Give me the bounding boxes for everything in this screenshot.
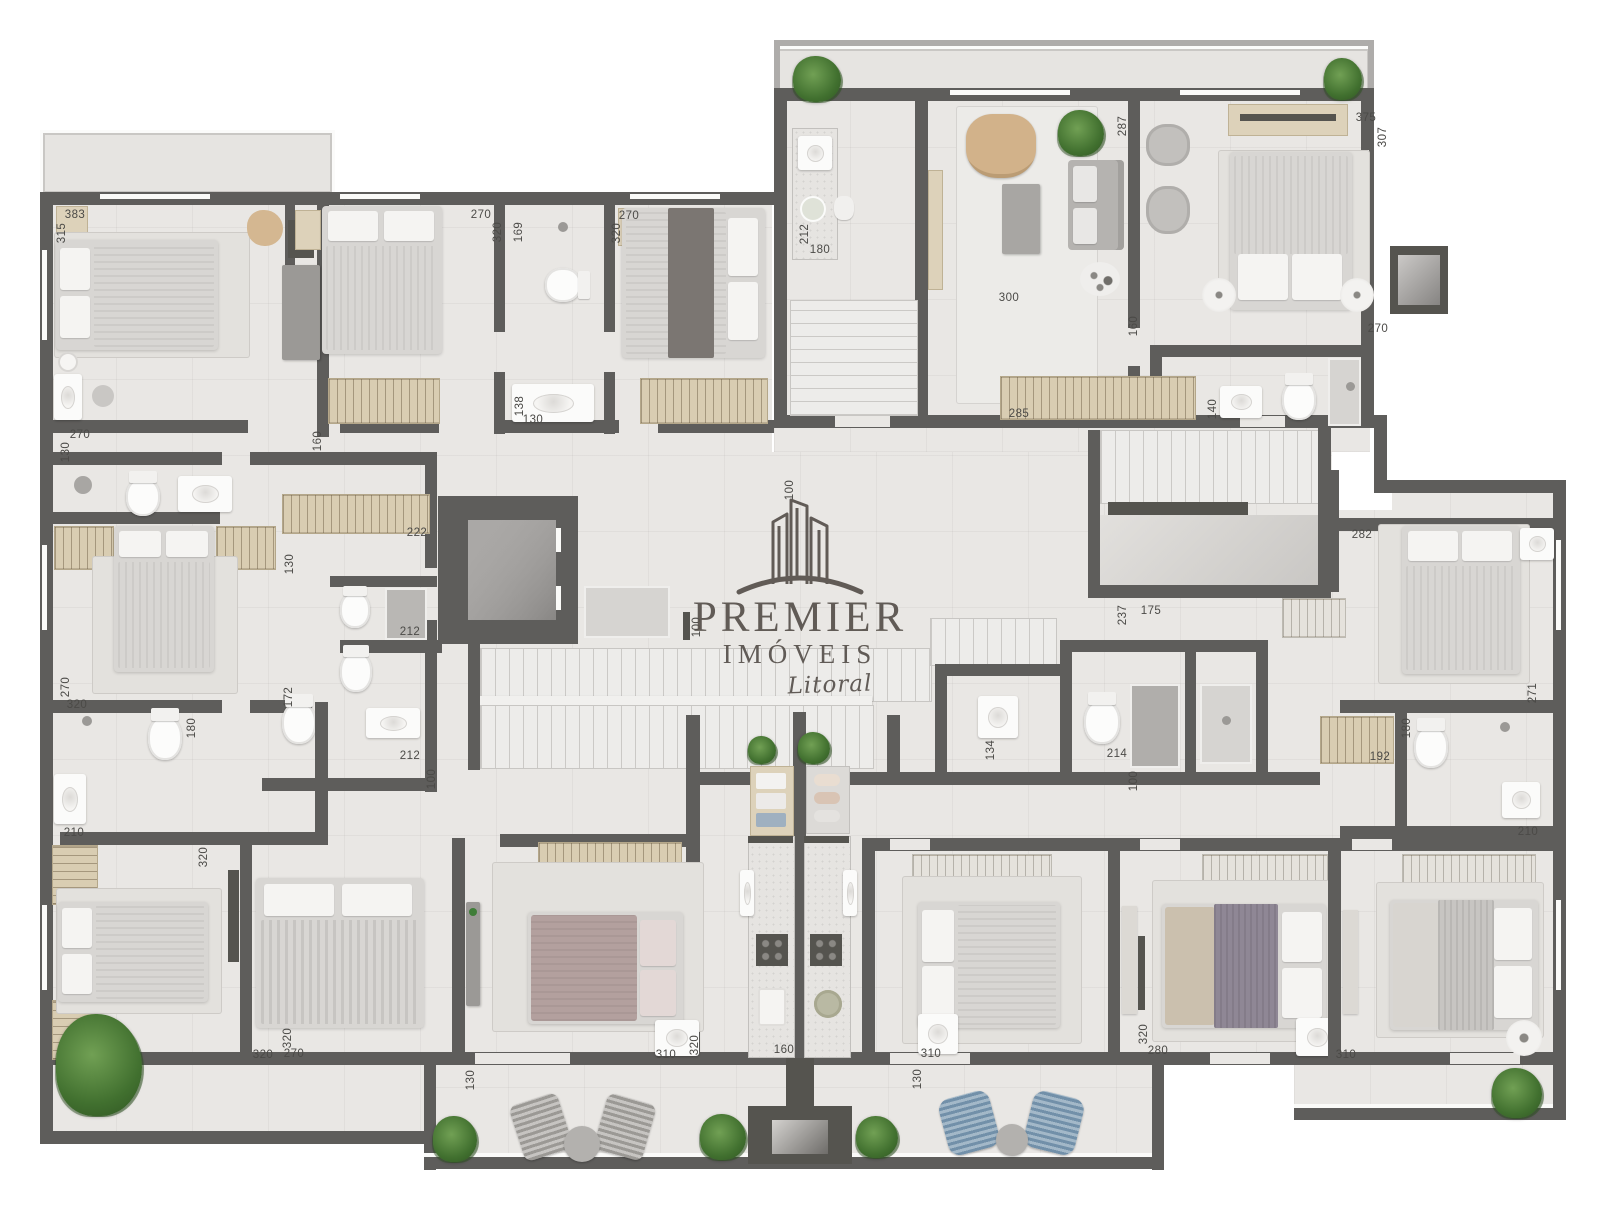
floor-lamp — [1506, 1020, 1542, 1056]
floor-lamp — [74, 476, 92, 494]
staircase — [930, 618, 1057, 666]
nightstand — [295, 210, 321, 250]
wall — [262, 778, 432, 791]
dimension-label: 130 — [912, 1069, 924, 1089]
window — [1180, 90, 1300, 95]
wardrobe — [328, 378, 440, 424]
washing-machine — [798, 136, 832, 170]
wall — [862, 838, 875, 1060]
dimension-label: 100 — [426, 769, 438, 789]
dimension-label: 100 — [1128, 771, 1140, 791]
wall — [1100, 585, 1320, 598]
dimension-label: 270 — [619, 210, 639, 222]
sofa — [1068, 160, 1124, 250]
double-bed — [1402, 526, 1520, 674]
toilet — [1414, 726, 1448, 768]
dimension-label: 130 — [465, 1070, 477, 1090]
coffee-table — [1002, 184, 1040, 254]
dimension-label: 212 — [400, 626, 420, 638]
dimension-label: 310 — [1336, 1049, 1356, 1061]
dimension-label: 180 — [810, 244, 830, 256]
dimension-label: 320 — [282, 1028, 294, 1048]
double-bed — [1162, 904, 1326, 1028]
stair-landing — [1100, 515, 1318, 585]
door-opening — [890, 839, 930, 850]
double-bed — [1230, 152, 1352, 310]
double-bed — [528, 912, 683, 1024]
dimension-label: 212 — [400, 750, 420, 762]
dimension-label: 282 — [1352, 529, 1372, 541]
bathroom-sink — [58, 352, 78, 372]
dimension-tick — [683, 612, 690, 640]
wardrobe — [1000, 376, 1196, 420]
shower-head — [82, 716, 92, 726]
shower — [1328, 358, 1361, 426]
dimension-label: 175 — [1141, 605, 1161, 617]
dimension-label: 310 — [921, 1048, 941, 1060]
double-bed — [256, 878, 424, 1028]
vanity — [54, 774, 86, 824]
elevator-door — [556, 586, 561, 610]
nightstand — [1520, 528, 1554, 560]
wall — [875, 838, 1565, 851]
dimension-label: 300 — [999, 292, 1019, 304]
tv-panel — [1138, 936, 1145, 1010]
internal-staircase — [790, 300, 918, 416]
cooktop — [756, 934, 788, 966]
dimension-label: 280 — [1148, 1045, 1168, 1057]
wall — [315, 702, 328, 845]
dimension-label: 287 — [1117, 116, 1129, 136]
dimension-label: 210 — [64, 827, 84, 839]
balcony-door — [1210, 1053, 1270, 1064]
tv-console — [1343, 910, 1358, 1014]
shelf — [750, 766, 794, 836]
dimension-label: 270 — [70, 429, 90, 441]
toilet — [148, 716, 182, 760]
cooktop — [810, 934, 842, 966]
dimension-label: 320 — [611, 223, 623, 243]
wall — [40, 512, 220, 524]
wall — [1152, 1052, 1164, 1170]
wall — [1326, 470, 1339, 592]
window — [100, 194, 210, 199]
double-bed — [1390, 900, 1538, 1030]
flower-arrangement — [1080, 262, 1120, 296]
dimension-label: 130 — [284, 554, 296, 574]
dimension-label: 307 — [1377, 127, 1389, 147]
double-bed — [114, 526, 214, 672]
dimension-label: 160 — [312, 431, 324, 451]
toilet — [282, 702, 316, 744]
wall — [1088, 430, 1100, 598]
wall — [935, 664, 1065, 676]
wall — [1553, 1060, 1566, 1116]
double-bed — [56, 240, 218, 350]
window — [630, 194, 720, 199]
tv-panel — [228, 870, 239, 962]
wall — [1256, 640, 1268, 785]
wall — [40, 1131, 432, 1144]
dimension-label: 320 — [198, 847, 210, 867]
wall — [935, 664, 947, 784]
dimension-label: 320 — [689, 1035, 701, 1055]
dimension-label: 140 — [1207, 399, 1219, 419]
dimension-label: 320 — [67, 699, 87, 711]
potted-plant — [1058, 110, 1104, 156]
wall — [60, 832, 325, 845]
brand-script: Litoral — [750, 669, 911, 701]
vanity — [54, 374, 82, 420]
basin — [814, 990, 842, 1018]
kitchen-sink — [740, 870, 754, 916]
tv-console — [1122, 906, 1137, 1014]
toilet — [1282, 380, 1316, 420]
elevator-door — [556, 528, 561, 552]
window — [1556, 900, 1561, 990]
brand-name: PREMIER — [690, 596, 910, 639]
laundry-sink — [800, 196, 826, 222]
dimension-label: 270 — [284, 1048, 304, 1060]
wall — [250, 452, 437, 465]
dimension-label: 270 — [60, 677, 72, 697]
dimension-label: 192 — [1370, 751, 1390, 763]
window — [1556, 540, 1561, 630]
closet — [1282, 598, 1346, 638]
wall — [494, 192, 505, 332]
dimension-label: 130 — [60, 442, 72, 462]
elevator-cab — [468, 520, 556, 620]
armchair — [966, 114, 1036, 178]
potted-plant — [1324, 58, 1362, 100]
wall — [1108, 851, 1120, 1060]
side-table — [996, 1124, 1028, 1156]
shower-head — [558, 222, 568, 232]
dimension-label: 214 — [1107, 748, 1127, 760]
dimension-label: 237 — [1117, 605, 1129, 625]
potted-plant — [856, 1116, 898, 1158]
dimension-label: 310 — [656, 1049, 676, 1061]
dimension-label: 271 — [1527, 683, 1539, 703]
dimension-label: 212 — [799, 224, 811, 244]
wood-door — [928, 170, 943, 290]
bedside-lamp — [1202, 278, 1236, 312]
dimension-label: 270 — [1368, 323, 1388, 335]
logo-building-icon — [735, 492, 865, 596]
bbq-inner — [772, 1120, 828, 1154]
wall — [1380, 480, 1566, 493]
wall — [887, 715, 900, 775]
wall — [1060, 640, 1265, 652]
shower — [584, 586, 670, 638]
wall — [1185, 652, 1196, 784]
potted-plant — [700, 1114, 746, 1160]
double-bed — [918, 902, 1060, 1028]
dimension-label: 169 — [513, 222, 525, 242]
double-bed — [622, 208, 765, 358]
dimension-label: 320 — [492, 222, 504, 242]
dimension-label: 270 — [471, 209, 491, 221]
toilet — [340, 652, 372, 692]
staircase — [1100, 430, 1320, 504]
dimension-label: 172 — [283, 687, 295, 707]
stool — [92, 385, 114, 407]
shower-head — [1222, 716, 1231, 725]
potted-plant — [793, 56, 841, 102]
dimension-label: 285 — [1009, 408, 1029, 420]
wall — [686, 715, 700, 840]
window — [42, 250, 47, 340]
dimension-label: 180 — [1401, 718, 1413, 738]
bathroom-sink — [978, 696, 1018, 738]
dimension-label: 160 — [774, 1044, 794, 1056]
bathroom-sink — [366, 708, 420, 738]
wardrobe — [640, 378, 768, 424]
bathroom-sink — [1502, 782, 1540, 818]
desk — [282, 265, 320, 360]
wall — [452, 838, 465, 1060]
wall — [774, 88, 787, 426]
pouf — [1146, 186, 1190, 234]
potted-plant — [433, 1116, 477, 1162]
dimension-label: 180 — [186, 718, 198, 738]
shelf-bar — [1240, 114, 1336, 121]
dimension-label: 134 — [985, 740, 997, 760]
wall — [1060, 640, 1072, 785]
bathroom-sink — [1220, 386, 1262, 418]
chair — [834, 196, 854, 220]
dimension-label: 315 — [56, 223, 68, 243]
balcony-door — [475, 1053, 570, 1064]
wall — [1340, 700, 1553, 713]
decor-dot — [469, 908, 477, 916]
potted-plant — [1492, 1068, 1542, 1118]
potted-plant — [56, 1014, 142, 1116]
dimension-label: 320 — [1138, 1024, 1150, 1044]
toilet — [545, 268, 581, 302]
floor-plan: 3833152701301602703201691381302703202121… — [0, 0, 1600, 1215]
brand-logo: PREMIER IMÓVEIS Litoral — [690, 492, 910, 698]
shower-head — [1346, 382, 1355, 391]
shower — [1130, 684, 1180, 768]
double-bed — [58, 902, 208, 1002]
potted-plant — [798, 732, 830, 764]
window — [42, 545, 47, 630]
dimension-label: 210 — [1518, 826, 1538, 838]
brand-sub: IMÓVEIS — [690, 639, 910, 670]
door-opening — [1140, 839, 1180, 850]
window — [42, 905, 47, 990]
stair-rail — [1108, 502, 1248, 515]
counter-edge — [748, 836, 793, 843]
wall — [468, 640, 480, 770]
dimension-label: 375 — [1356, 112, 1376, 124]
counter-edge — [804, 836, 849, 843]
kitchen-sink — [843, 870, 857, 916]
armchair — [247, 210, 283, 246]
terrace-door — [1450, 1053, 1520, 1064]
wall — [1150, 345, 1363, 357]
toilet — [126, 478, 160, 516]
tv-console — [466, 902, 480, 1006]
dimension-label: 160 — [1128, 316, 1140, 336]
window — [950, 90, 1070, 95]
service-box-inner — [1398, 255, 1440, 305]
door-opening — [1352, 839, 1392, 850]
toilet — [1084, 700, 1120, 744]
dimension-label: 222 — [407, 527, 427, 539]
potted-plant — [748, 736, 776, 764]
balcony-railing — [774, 40, 1374, 46]
wall — [1328, 851, 1341, 1060]
side-table — [564, 1126, 600, 1162]
dimension-label: 130 — [523, 414, 543, 426]
dimension-label: 383 — [65, 209, 85, 221]
vanity — [178, 476, 232, 512]
toilet — [340, 592, 370, 628]
bbq-structure — [786, 1058, 814, 1112]
dimension-label: 320 — [253, 1049, 273, 1061]
shower-head — [1500, 722, 1510, 732]
double-bed — [322, 206, 442, 354]
wall — [604, 192, 615, 332]
wall — [1128, 96, 1140, 328]
wall — [240, 845, 252, 1060]
shelf — [806, 766, 850, 834]
bedside-lamp — [1340, 278, 1374, 312]
balcony-top-left — [40, 130, 335, 196]
window — [340, 194, 420, 199]
door-opening — [835, 416, 890, 427]
pouf — [1146, 124, 1190, 166]
towel — [758, 988, 786, 1026]
